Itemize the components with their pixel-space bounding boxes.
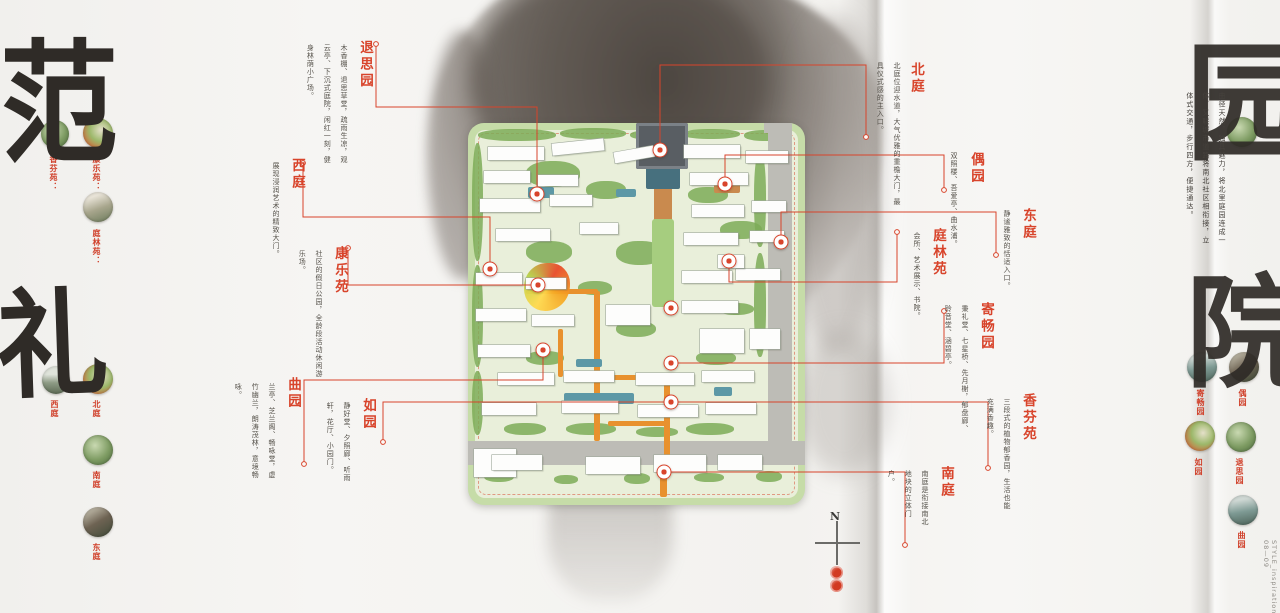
footer-page-number: 08—09 [1262, 540, 1270, 568]
callout-desc-quyuan: 兰亭、芝兰阁、畅咏堂，虚竹幽兰，朗涛茂林，意境畅咏。 [230, 383, 280, 483]
callout-desc-xiting: 展现浸润艺术的精致大门。 [267, 162, 284, 262]
thumbnail-photo-10 [1185, 421, 1215, 451]
callout-desc-tinglinyuan: 会所、艺术展示、书院。 [908, 232, 925, 342]
thumbnail-label-10: 如园 [1194, 458, 1205, 476]
red-seal-top [830, 566, 843, 579]
thumbnail-photo-2 [83, 192, 113, 222]
callout-title-kangleyuan: 康乐苑 [330, 246, 350, 296]
map-marker-xiting [483, 262, 498, 277]
callout-title-dongting: 东庭 [1018, 208, 1038, 241]
thumbnail-label-2: 庭林苑： [92, 229, 103, 265]
map-marker-ouyuan [718, 177, 733, 192]
map-marker-tuisiyuan [530, 187, 545, 202]
thumbnail-photo-11 [1226, 422, 1256, 452]
callout-desc-nanting: 南庭是衔接南北地块的立体门户。 [883, 470, 933, 532]
map-marker-dongting [774, 235, 789, 250]
thumbnail-label-6: 东庭 [92, 543, 103, 561]
callout-desc-tuisiyuan: 木香棚、退思草堂，疏雨生凉，观云亭、下沉式庭院，闲红一刻，健身林荫小广场。 [302, 44, 352, 164]
thumbnail-label-12: 曲园 [1237, 531, 1248, 549]
red-seal-bottom [830, 579, 843, 592]
callout-desc-ruyuan: 静好堂、夕照廊、听雨轩，花厅、小园门。 [321, 402, 355, 487]
map-marker-jichangyuan [664, 356, 679, 371]
map-marker-ruyuan [664, 395, 679, 410]
callout-title-nanting: 南庭 [936, 466, 956, 499]
annotation-layer: 退思园木香棚、退思草堂，疏雨生凉，观云亭、下沉式庭院，闲红一刻，健身林荫小广场。… [0, 0, 1280, 613]
thumbnail-photo-6 [83, 507, 113, 537]
booklet-spread: 退思园木香棚、退思草堂，疏雨生凉，观云亭、下沉式庭院，闲红一刻，健身林荫小广场。… [0, 0, 1280, 613]
thumbnail-label-5: 南庭 [92, 471, 103, 489]
map-marker-tinglinyuan [722, 254, 737, 269]
callout-desc-jichangyuan: 秉礼堂、七星桥、先月榭，郁盘廊、聆音堂、涵碧亭。 [939, 305, 973, 440]
map-marker-kangleyuan [531, 278, 546, 293]
callout-title-jichangyuan: 寄畅园 [976, 302, 996, 352]
map-marker-quyuan [536, 343, 551, 358]
callout-title-tuisiyuan: 退思园 [355, 40, 375, 90]
thumbnail-photo-12 [1228, 495, 1258, 525]
map-marker-extra-0 [664, 301, 679, 316]
calligraphy-fan: 范 [0, 38, 118, 170]
calligraphy-yuan2: 院 [1186, 272, 1280, 394]
callout-title-tinglinyuan: 庭林苑 [928, 228, 948, 278]
callout-desc-xiangfenyuan: 三段式的植物郁香园，生活也能充满香趣。 [981, 398, 1015, 513]
callout-title-xiting: 西庭 [287, 158, 307, 191]
compass-cross-v [836, 521, 838, 565]
callout-title-ruyuan: 如园 [358, 398, 378, 431]
callout-desc-dongting: 静谧雅致的恬适入口。 [998, 210, 1015, 295]
footer-page-info: STYLE_inspiration 08—09 [1262, 540, 1278, 612]
map-marker-nanting [657, 465, 672, 480]
callout-title-quyuan: 曲园 [283, 377, 303, 410]
thumbnail-photo-5 [83, 435, 113, 465]
callout-desc-beiting: 北庭位迎水道，大气优雅的重檐大门，最具仪式感的主入口。 [871, 62, 905, 212]
thumbnail-label-11: 退思园 [1235, 458, 1246, 485]
calligraphy-li: 礼 [0, 285, 110, 407]
callout-title-xiangfenyuan: 香芬苑 [1018, 393, 1038, 443]
site-intro-paragraph: 曲径天然，独具魅力，将北里庭园连成一体，又联城市道路将南北社区相衔接，立体式交通… [1182, 92, 1230, 250]
footer-brand: STYLE_inspiration [1270, 540, 1278, 613]
map-marker-beiting [653, 143, 668, 158]
callout-title-beiting: 北庭 [906, 62, 926, 95]
callout-title-ouyuan: 偶园 [966, 152, 986, 185]
callout-desc-kangleyuan: 社区的假日公园，全龄段活动休闲游乐场。 [293, 250, 327, 385]
